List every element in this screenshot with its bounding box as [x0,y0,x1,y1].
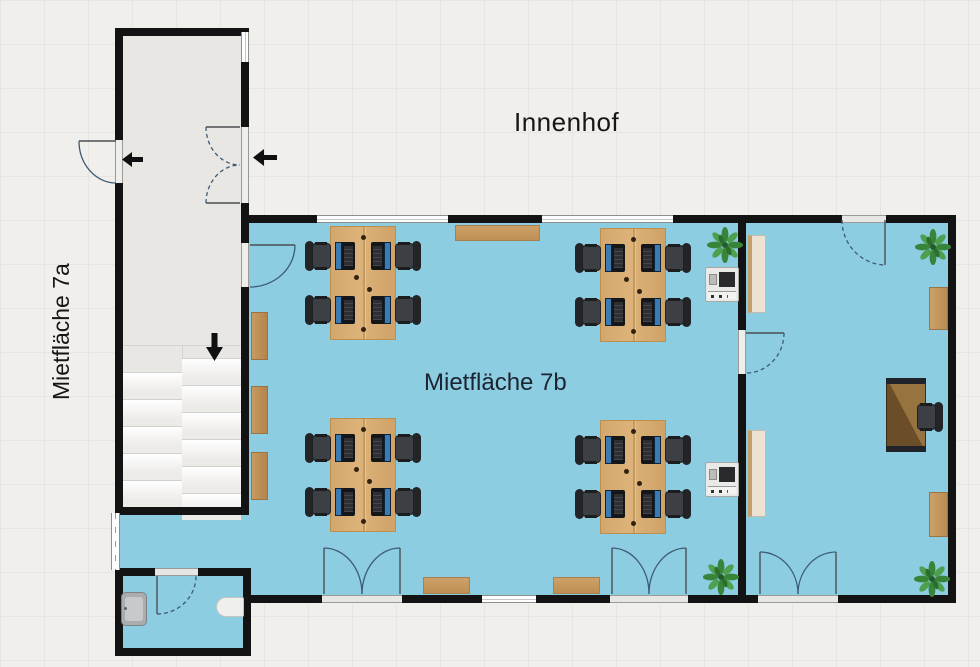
stair-step [123,372,182,399]
radiator [748,235,766,313]
printer [705,267,739,302]
double-door-band-se [610,595,688,603]
laptop [641,490,661,518]
stair-step [182,385,241,412]
wall-segment [115,28,123,140]
wall-shelf [251,452,268,500]
office-chair [306,294,332,326]
sink [121,592,147,626]
laptop [335,296,355,324]
wall-segment [402,595,482,603]
door-swing-office-top [840,219,890,269]
wall-segment [241,215,317,223]
laptop [605,436,625,464]
wall-segment [673,215,842,223]
label-unit-7b: Mietfläche 7b [424,369,567,397]
wall-shelf [929,287,948,330]
stair-step [123,453,182,480]
door-swing-divider [746,328,792,378]
wall-segment [115,183,123,515]
office-chair [394,432,420,464]
stair-step [182,439,241,466]
label-unit-7a: Mietfläche 7a [48,263,75,400]
stairwell-window [241,32,249,62]
wall-segment [886,215,956,223]
laptop [371,434,391,462]
door-swing-bathroom [152,574,202,620]
laptop [371,296,391,324]
floor-plan: Innenhof Mietfläche 7a Mietfläche 7b [0,0,980,667]
office-chair [664,296,690,328]
stair-step [182,466,241,493]
office-chair [916,401,942,431]
laptop [641,298,661,326]
wall-shelf [251,386,268,434]
office-chair [664,488,690,520]
plant-icon [913,560,951,598]
stair-step [182,412,241,439]
plant-icon [702,558,740,596]
laptop [641,244,661,272]
stair-to-room-door-band [241,243,249,287]
laptop [605,244,625,272]
wall-segment [115,648,251,656]
wall-segment [241,203,249,243]
double-door-band-sw [322,595,402,603]
office-chair [576,488,602,520]
office-chair [664,434,690,466]
window-top-right [542,215,673,223]
printer [705,462,739,497]
entrance-double-door-band [241,127,249,203]
wall-segment [241,287,249,515]
stair-step [182,358,241,385]
office-chair [394,486,420,518]
stair-step [123,480,182,507]
corridor-window [111,513,120,570]
office-chair [576,296,602,328]
laptop [641,436,661,464]
stair-step [123,426,182,453]
wall-segment [948,215,956,603]
wall-segment [115,507,249,515]
door-swing-double-office [758,552,838,596]
door-swing-double-se [610,548,688,596]
laptop [371,488,391,516]
wall-segment [243,595,322,603]
door-swing-entrance-double [198,124,242,206]
label-courtyard: Innenhof [514,107,619,138]
corridor-floor [120,515,249,568]
wall-shelf [929,492,948,537]
plant-icon [914,228,952,266]
sideboard [553,577,600,594]
office-chair [576,434,602,466]
laptop [335,488,355,516]
window-bottom [482,595,536,603]
wall-segment [688,595,758,603]
laptop [371,242,391,270]
office-chair [394,240,420,272]
door-swing-entrance-left [70,136,118,188]
divider-door-band [738,330,746,374]
window-top-left [317,215,448,223]
wall-segment [241,62,249,127]
radiator [748,430,766,517]
office-chair [306,432,332,464]
sideboard [455,225,540,241]
stair-step [123,399,182,426]
sideboard [423,577,470,594]
office-chair [576,242,602,274]
door-swing-double-sw [322,548,402,596]
wall-segment [448,215,542,223]
plant-icon [706,226,744,264]
laptop [605,298,625,326]
laptop [335,434,355,462]
wall-segment [243,568,251,656]
double-door-band-office [758,595,838,603]
office-chair [306,486,332,518]
wall-segment [536,595,610,603]
office-chair [394,294,420,326]
laptop [605,490,625,518]
door-swing-stair-to-room [249,240,301,290]
office-chair [664,242,690,274]
wall-shelf [251,312,268,360]
toilet [216,597,244,617]
wall-segment [115,28,249,36]
laptop [335,242,355,270]
office-chair [306,240,332,272]
